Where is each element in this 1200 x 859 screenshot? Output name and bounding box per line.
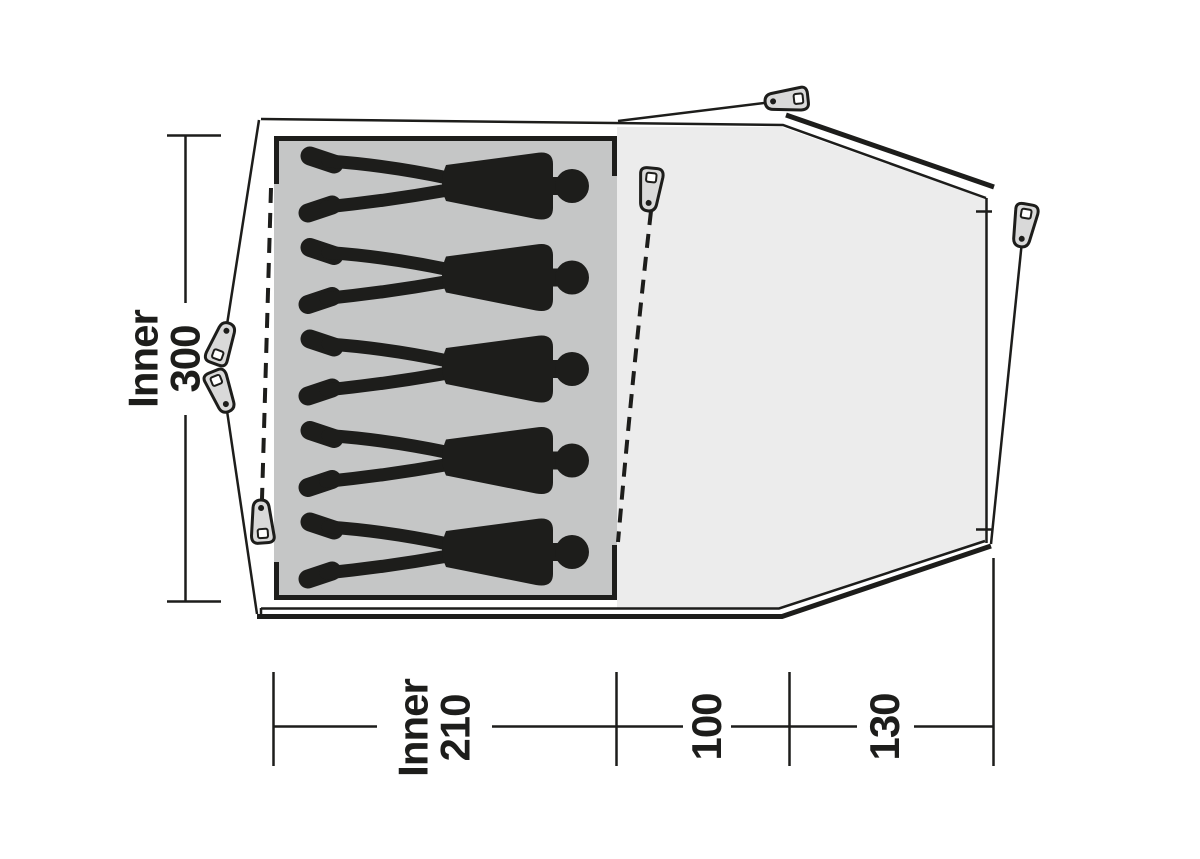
dimension-mid-width-value: 100 [686, 693, 728, 760]
tent-peg-icon-left-upper [204, 319, 240, 367]
guy-line-top [618, 102, 772, 121]
dimension-label-inner-width: Inner 210 [392, 679, 475, 777]
dimension-front-width-value: 130 [864, 693, 906, 760]
tent-peg-icon-right [1009, 202, 1039, 248]
tent-peg-icon-left-lower [202, 367, 239, 415]
floorplan-drawing [0, 0, 1200, 859]
dimension-depth-value: 300 [164, 310, 206, 408]
dimension-depth-prefix: Inner [122, 310, 164, 408]
living-area [617, 127, 986, 608]
dimension-inner-width-prefix: Inner [392, 679, 434, 777]
tent-floorplan: Inner 300 Inner 210 100 130 [0, 0, 1200, 859]
dimension-label-mid-width: 100 [686, 693, 728, 760]
guy-line-left-upper [226, 120, 259, 331]
dimension-inner-width-value: 210 [434, 679, 476, 777]
guy-line-right [991, 241, 1022, 544]
tent-peg-icon-left-bottom [249, 499, 275, 543]
dashed-line-left [262, 188, 271, 499]
tent-peg-icon-top [764, 87, 809, 114]
dimension-label-depth: Inner 300 [122, 310, 205, 408]
dimension-label-front-width: 130 [864, 693, 906, 760]
